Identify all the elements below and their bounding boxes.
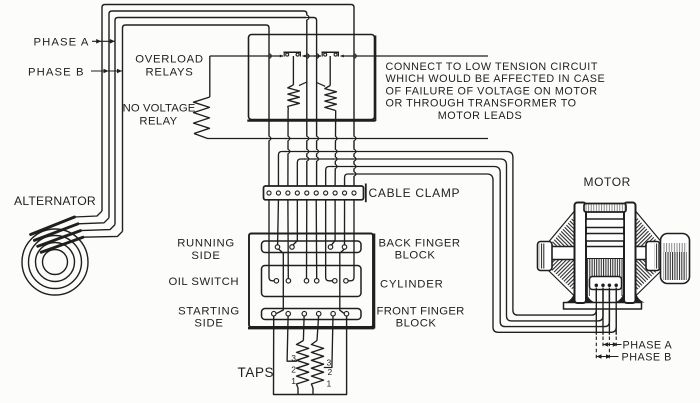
svg-text:FRONT FINGER: FRONT FINGER bbox=[377, 306, 465, 318]
svg-text:SIDE: SIDE bbox=[191, 250, 220, 262]
svg-text:BLOCK: BLOCK bbox=[395, 250, 436, 262]
svg-text:1: 1 bbox=[327, 379, 332, 389]
svg-text:CABLE CLAMP: CABLE CLAMP bbox=[369, 186, 461, 200]
svg-text:PHASE B: PHASE B bbox=[622, 352, 672, 364]
svg-text:WHICH WOULD BE AFFECTED IN CAS: WHICH WOULD BE AFFECTED IN CASE bbox=[386, 73, 606, 85]
svg-text:OVERLOAD: OVERLOAD bbox=[135, 54, 203, 66]
svg-text:BACK FINGER: BACK FINGER bbox=[379, 238, 461, 250]
svg-text:OIL SWITCH: OIL SWITCH bbox=[169, 276, 239, 288]
svg-text:BLOCK: BLOCK bbox=[396, 318, 437, 330]
svg-text:OR THROUGH TRANSFORMER TO: OR THROUGH TRANSFORMER TO bbox=[386, 98, 577, 110]
svg-text:TAPS: TAPS bbox=[238, 365, 275, 380]
svg-text:OF FAILURE OF VOLTAGE ON MOTOR: OF FAILURE OF VOLTAGE ON MOTOR bbox=[386, 85, 598, 97]
svg-text:1: 1 bbox=[291, 376, 296, 386]
svg-text:ALTERNATOR: ALTERNATOR bbox=[14, 194, 96, 208]
svg-text:3: 3 bbox=[291, 353, 296, 363]
svg-text:STARTING: STARTING bbox=[178, 306, 240, 318]
svg-text:CYLINDER: CYLINDER bbox=[380, 279, 444, 291]
svg-text:RELAYS: RELAYS bbox=[146, 67, 194, 79]
svg-text:CONNECT TO LOW TENSION CIRCUIT: CONNECT TO LOW TENSION CIRCUIT bbox=[386, 61, 598, 73]
svg-text:MOTOR LEADS: MOTOR LEADS bbox=[438, 110, 522, 122]
svg-text:PHASE B: PHASE B bbox=[28, 67, 85, 79]
svg-text:SIDE: SIDE bbox=[194, 318, 223, 330]
svg-text:2: 2 bbox=[328, 367, 333, 377]
svg-text:PHASE A: PHASE A bbox=[34, 37, 90, 49]
svg-text:RUNNING: RUNNING bbox=[177, 238, 235, 250]
svg-text:PHASE A: PHASE A bbox=[623, 340, 673, 352]
svg-text:3: 3 bbox=[327, 358, 332, 368]
svg-text:RELAY: RELAY bbox=[139, 116, 177, 128]
svg-text:MOTOR: MOTOR bbox=[584, 175, 631, 189]
svg-text:NO VOLTAGE: NO VOLTAGE bbox=[123, 103, 196, 115]
svg-text:2: 2 bbox=[291, 365, 296, 375]
